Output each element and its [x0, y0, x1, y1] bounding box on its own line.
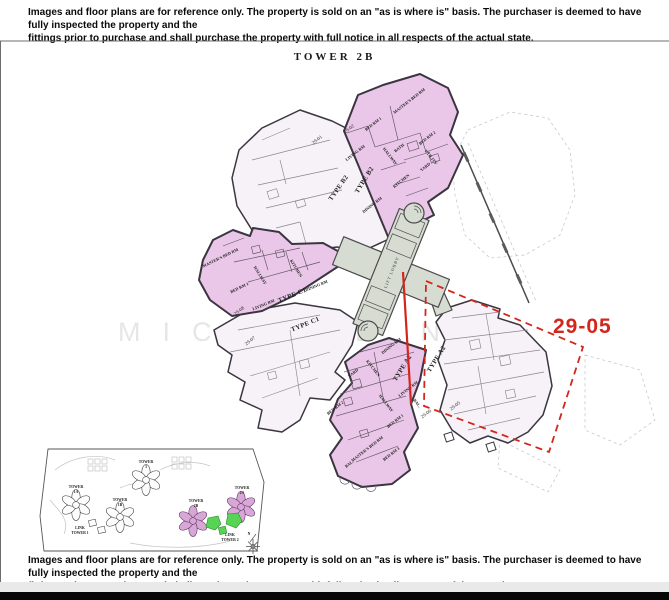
balcony-column [444, 432, 454, 442]
minimap-tower-label: 1A [74, 490, 79, 494]
stair-bottom-icon [358, 321, 378, 341]
site-minimap: TOWER 3 TOWER 1A TOWER 1B TOWER 2B TOWER… [40, 449, 264, 554]
floor-plan-page: { "title": "TOWER 2B", "disclaimer": { "… [0, 0, 669, 600]
compass-north-label: N [248, 532, 251, 536]
balcony-column [486, 442, 496, 452]
adjacent-outline-right [585, 355, 655, 445]
minimap-tower-label: TOWER [189, 499, 204, 503]
minimap-tower-label: 3 [145, 465, 147, 469]
minimap-tower-label: TOWER [139, 460, 154, 464]
stair-top-icon [404, 203, 424, 223]
minimap-tower-label: LINK [225, 533, 235, 537]
minimap-tower-label: 2B [194, 504, 199, 508]
unit-number-label: 29-06 [421, 409, 434, 420]
room-label: BAL. [412, 398, 422, 409]
minimap-tower-label: TOWER [69, 485, 84, 489]
minimap-tower-label: TOWER 2 [221, 538, 238, 542]
unit-29-05-outline [436, 300, 552, 443]
minimap-tower-label: TOWER 1 [71, 531, 88, 535]
adjacent-tower-outline [452, 112, 575, 258]
walkway-ticks [463, 152, 523, 284]
wing-top: MASTER'S BED RM BED RM 1 BED RM 2 LIVING… [232, 74, 463, 252]
link-walkway-dashed [468, 143, 536, 301]
minimap-tower-label: 1B [118, 503, 123, 507]
minimap-tower-label: LINK [75, 526, 85, 530]
floor-plan-drawing: MICHAEL NG MASTER'S BED RM BED RM [0, 0, 669, 600]
minimap-tower-label: TOWER [235, 486, 250, 490]
footer-black-bar [0, 592, 669, 600]
minimap-tower-label: TOWER [113, 498, 128, 502]
wing-left: MASTER'S BED RM BED RM 1 HALLWAY KITCHEN… [199, 228, 358, 432]
minimap-tower-label: 2A [240, 491, 245, 495]
highlight-unit-number: 29-05 [553, 315, 612, 338]
disclaimer-bottom-line1: Images and floor plans are for reference… [28, 554, 648, 580]
footer-gray-band [0, 582, 669, 592]
